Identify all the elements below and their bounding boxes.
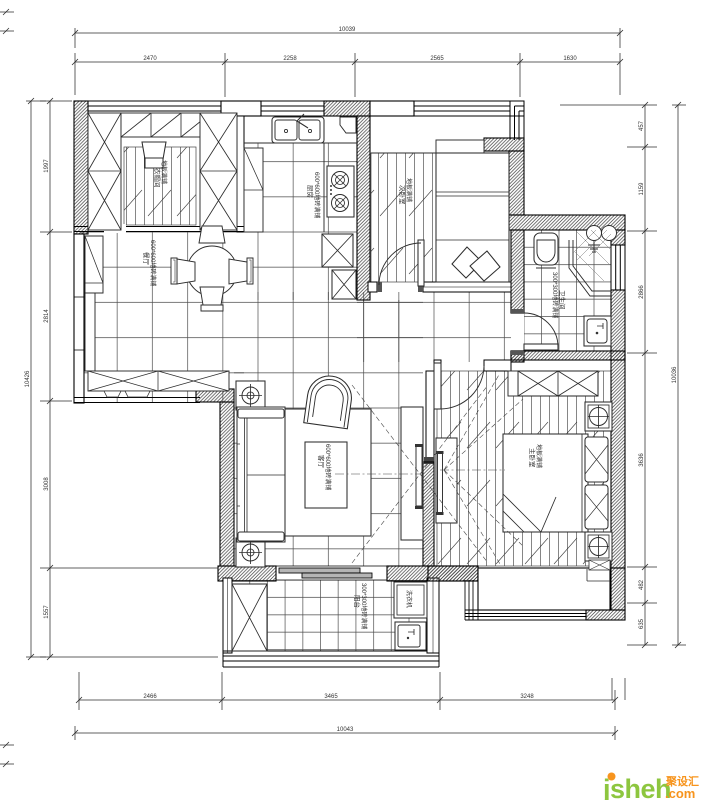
svg-text:2565: 2565	[430, 56, 444, 62]
svg-text:2814: 2814	[44, 309, 50, 323]
svg-text:10039: 10039	[339, 27, 356, 33]
svg-text:1557: 1557	[44, 605, 50, 619]
svg-text:600*600地砖满铺: 600*600地砖满铺	[324, 444, 332, 490]
svg-text:地板满铺: 地板满铺	[160, 160, 168, 184]
svg-text:300*300地砖满铺: 300*300地砖满铺	[551, 272, 559, 318]
svg-text:10043: 10043	[337, 727, 354, 733]
svg-text:卫生间: 卫生间	[558, 290, 567, 310]
svg-text:600*600地砖满铺: 600*600地砖满铺	[313, 172, 321, 218]
svg-text:3465: 3465	[324, 694, 338, 700]
svg-text:地板满铺: 地板满铺	[535, 444, 543, 468]
svg-text:2466: 2466	[143, 694, 157, 700]
svg-text:10426: 10426	[25, 370, 31, 387]
svg-text:482: 482	[639, 579, 645, 590]
svg-text:3008: 3008	[44, 477, 50, 491]
svg-text:2258: 2258	[283, 56, 297, 62]
svg-text:洗衣机: 洗衣机	[405, 590, 413, 608]
svg-text:2470: 2470	[143, 56, 157, 62]
svg-text:300*300地砖满铺: 300*300地砖满铺	[360, 583, 368, 629]
svg-text:2866: 2866	[639, 285, 645, 299]
svg-text:1997: 1997	[44, 159, 50, 173]
svg-text:457: 457	[639, 120, 645, 131]
svg-text:3636: 3636	[639, 453, 645, 467]
svg-text:1159: 1159	[639, 182, 645, 196]
svg-text:3248: 3248	[520, 694, 534, 700]
svg-text:10036: 10036	[672, 366, 678, 383]
svg-text:地板满铺: 地板满铺	[405, 178, 413, 202]
svg-text:1630: 1630	[563, 56, 577, 62]
svg-text:635: 635	[639, 618, 645, 629]
svg-text:600*600地砖满铺: 600*600地砖满铺	[149, 240, 157, 286]
svg-text:.com: .com	[665, 786, 695, 800]
